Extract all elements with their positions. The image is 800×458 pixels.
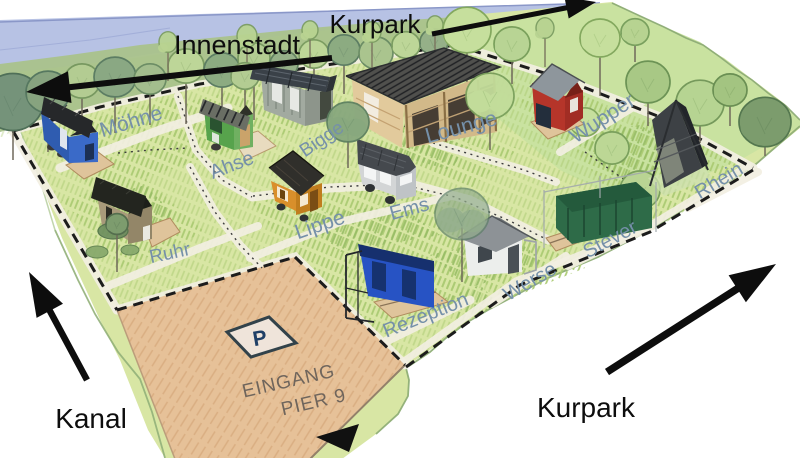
svg-text:Kanal: Kanal: [55, 403, 127, 434]
svg-text:Kurpark: Kurpark: [537, 392, 636, 423]
svg-text:Kurpark: Kurpark: [329, 9, 421, 39]
svg-text:Innenstadt: Innenstadt: [174, 30, 301, 60]
